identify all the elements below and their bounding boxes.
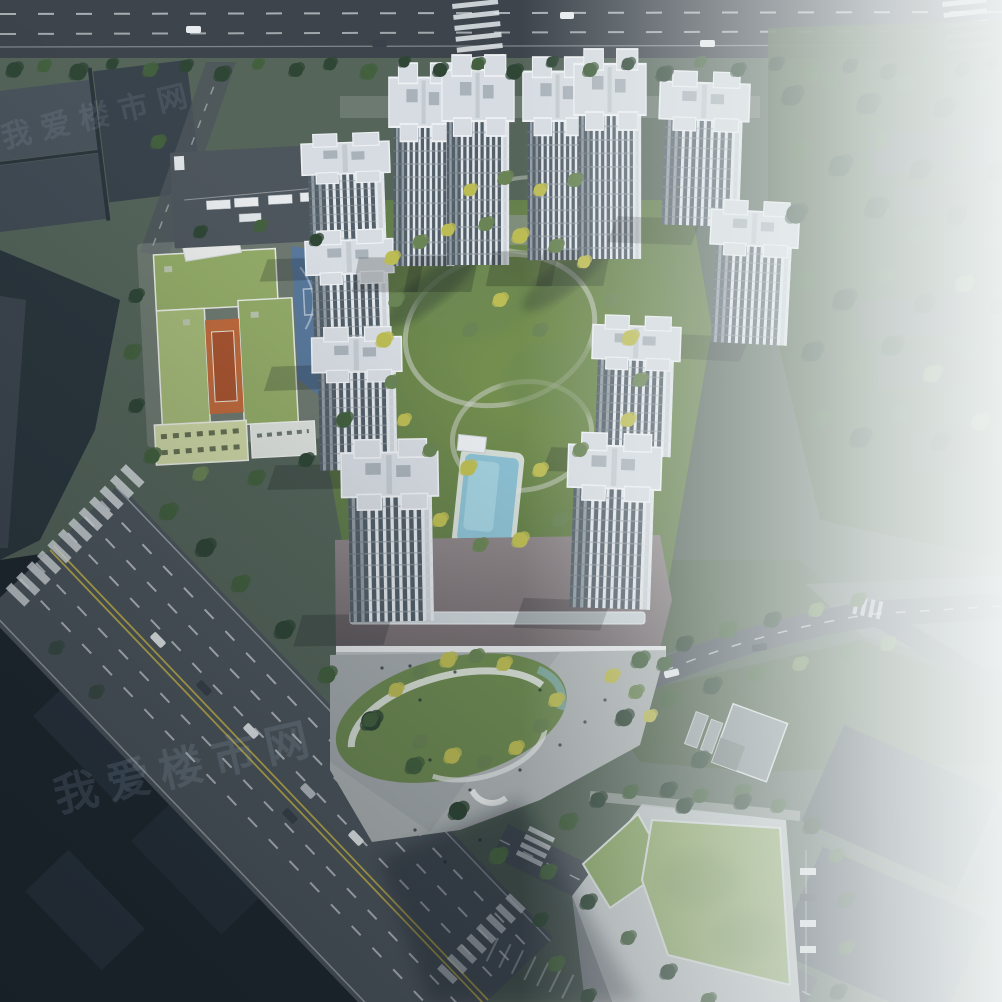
render-canvas: 我爱楼市网 我爱楼市网	[0, 0, 1002, 1002]
aerial-render: 我爱楼市网 我爱楼市网	[0, 0, 1002, 1002]
fog-overlay	[0, 0, 1002, 1002]
